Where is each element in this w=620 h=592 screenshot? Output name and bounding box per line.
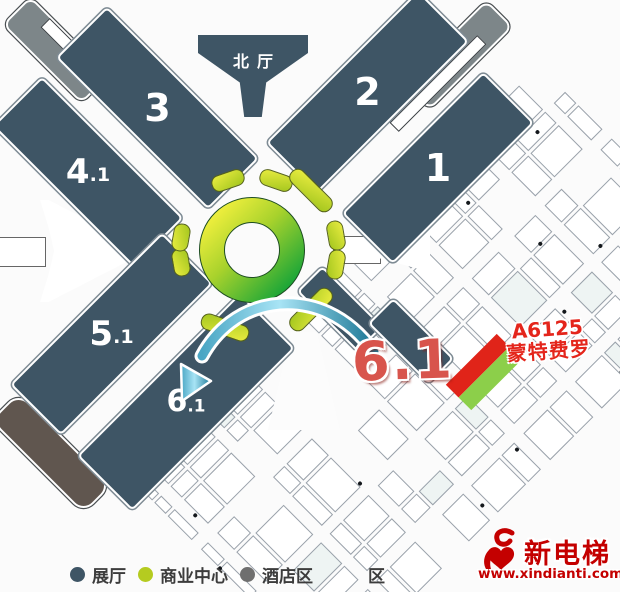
legend-dot-hotel-area [240,567,255,582]
hall-4-1-label: 4.1 [0,139,186,205]
legend-item-exhibition-hall: 展厅 [70,562,126,587]
legend-label-commercial-center: 商业中心 [160,562,228,587]
hall-1-label: 1 [340,134,536,202]
ring-road-segment [170,222,192,253]
legend-partial-label: 区 [368,562,385,587]
booth-cell [600,138,620,166]
legend-dot-commercial-center [138,567,153,582]
branding-watermark: 新电梯 www.xindianti.com [478,528,620,590]
commercial-center-ring-hole [224,222,280,278]
pillar-dot [561,309,567,315]
brand-website: www.xindianti.com [478,566,620,582]
north-hall-label: 北厅 [198,48,308,72]
highlight-hall-number: 6.1 [351,332,454,390]
booth-callout: A6125 蒙特费罗 [487,314,610,366]
hall-6-1-label: 6.1 [73,365,299,439]
booth-cell [567,105,602,140]
legend-item-commercial-center: 商业中心 [138,562,228,587]
expo-venue-map: 3 4.1 2 1 5.1 6.1 北厅 [0,0,620,592]
legend-dot-exhibition-hall [70,567,85,582]
booth-cell [601,245,620,283]
pillar-dot [479,503,485,509]
legend-label-exhibition-hall: 展厅 [92,562,126,587]
legend-label-hotel-area: 酒店区 [262,562,313,587]
booth-cell [154,496,172,514]
west-corridor [0,237,46,267]
booth-cell [358,409,409,460]
legend-item-hotel-area: 酒店区 [240,562,313,587]
